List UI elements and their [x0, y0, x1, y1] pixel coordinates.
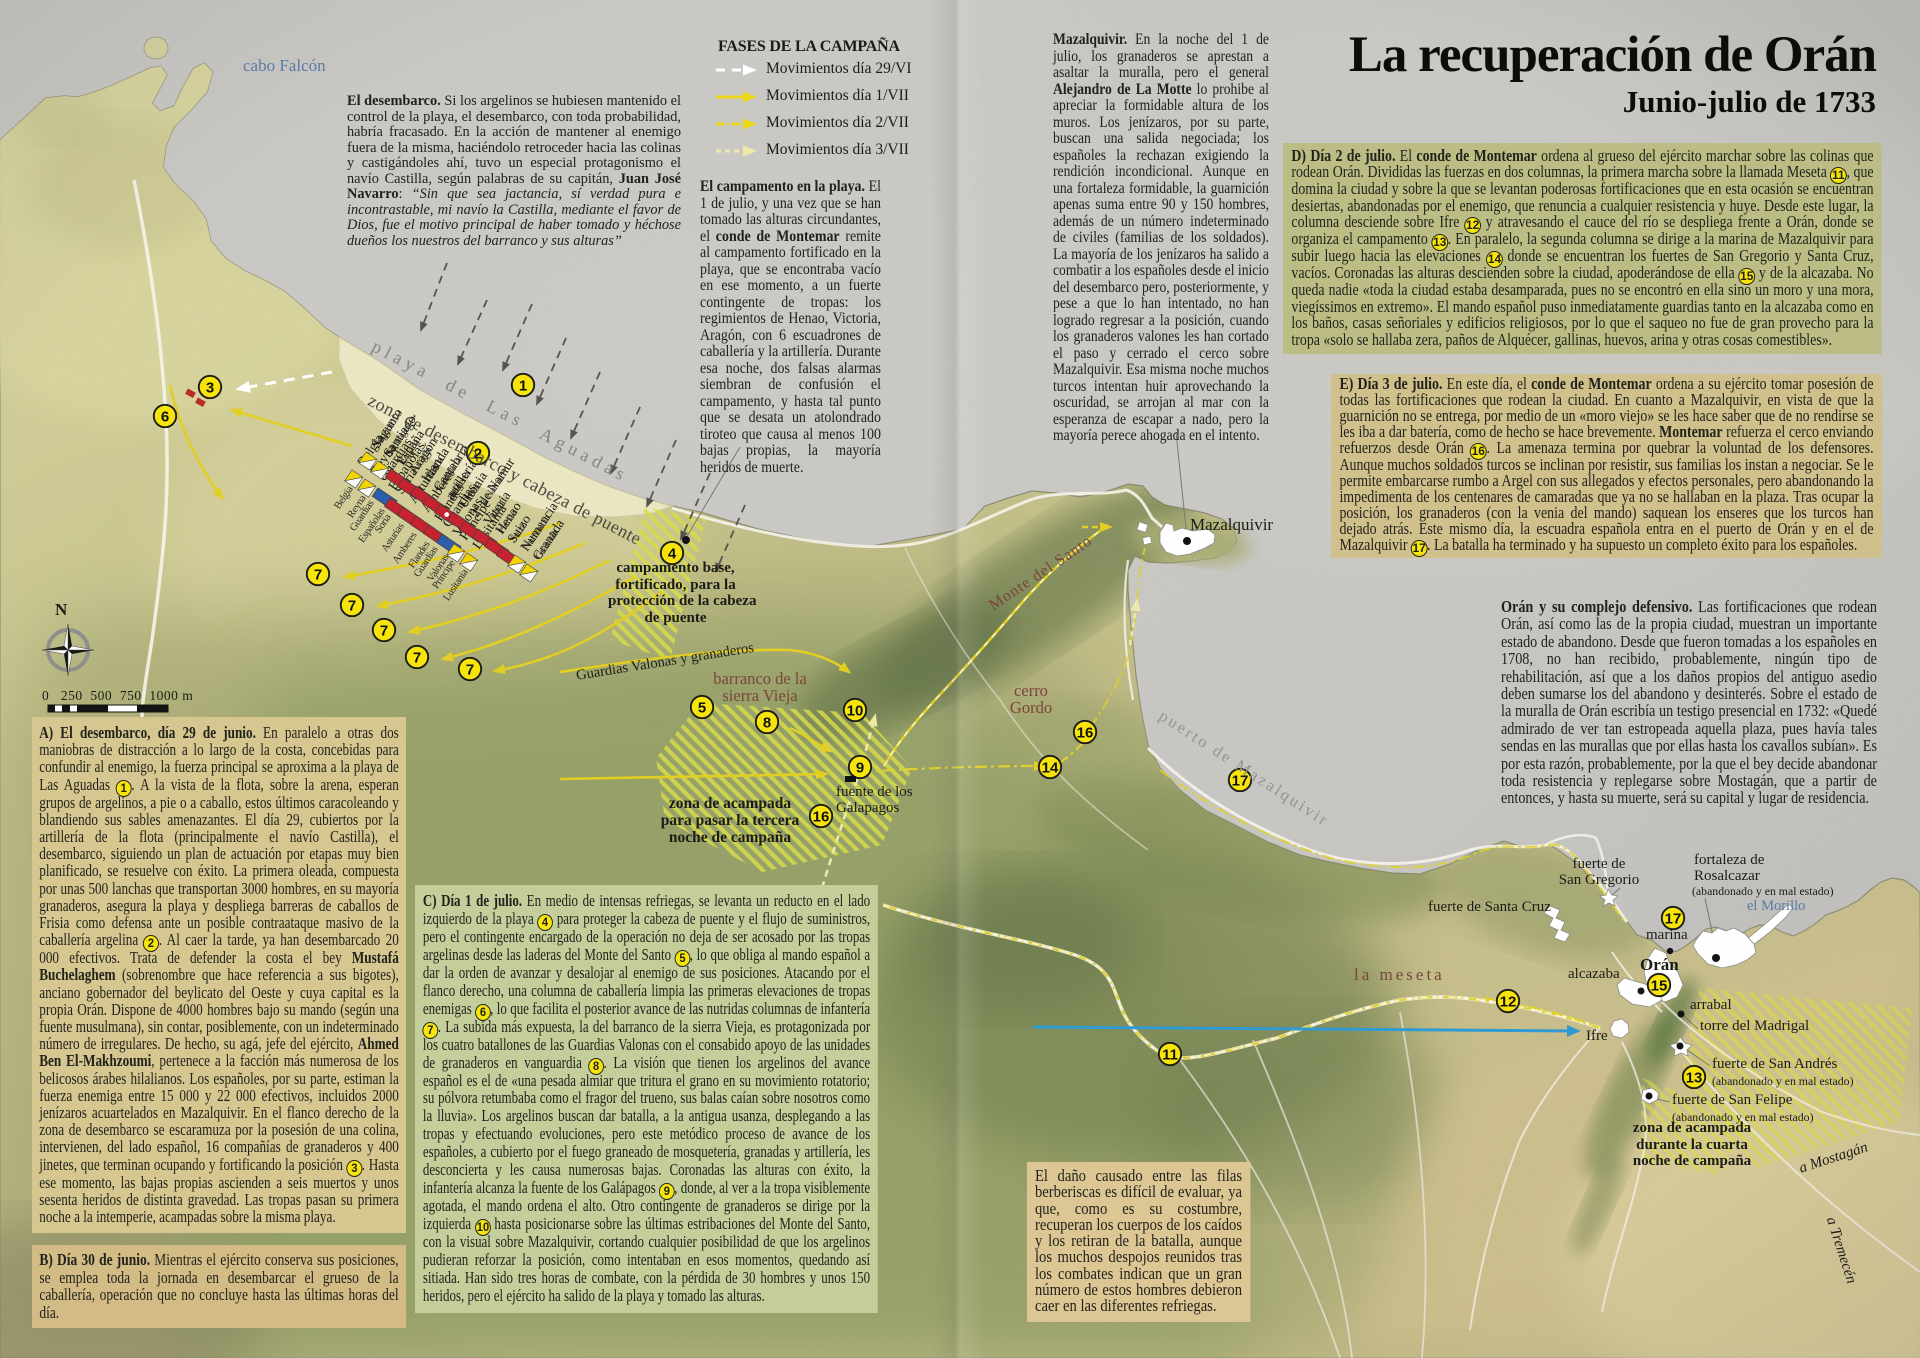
svg-text:7: 7	[348, 598, 356, 615]
svg-text:14: 14	[1042, 760, 1059, 777]
svg-text:13: 13	[1686, 1070, 1703, 1087]
svg-text:7: 7	[413, 650, 421, 667]
svg-text:8: 8	[763, 715, 771, 732]
svg-text:15: 15	[1651, 978, 1668, 995]
svg-text:16: 16	[813, 809, 830, 826]
svg-text:17: 17	[1665, 911, 1682, 928]
svg-text:10: 10	[847, 703, 864, 720]
svg-text:12: 12	[1500, 994, 1517, 1011]
svg-text:16: 16	[1077, 725, 1094, 742]
svg-text:7: 7	[380, 623, 388, 640]
svg-text:7: 7	[466, 662, 474, 679]
svg-text:7: 7	[314, 567, 322, 584]
svg-text:11: 11	[1162, 1047, 1178, 1064]
svg-text:6: 6	[161, 409, 169, 426]
svg-text:9: 9	[856, 760, 864, 777]
svg-text:3: 3	[206, 380, 214, 397]
svg-text:1: 1	[519, 378, 527, 395]
